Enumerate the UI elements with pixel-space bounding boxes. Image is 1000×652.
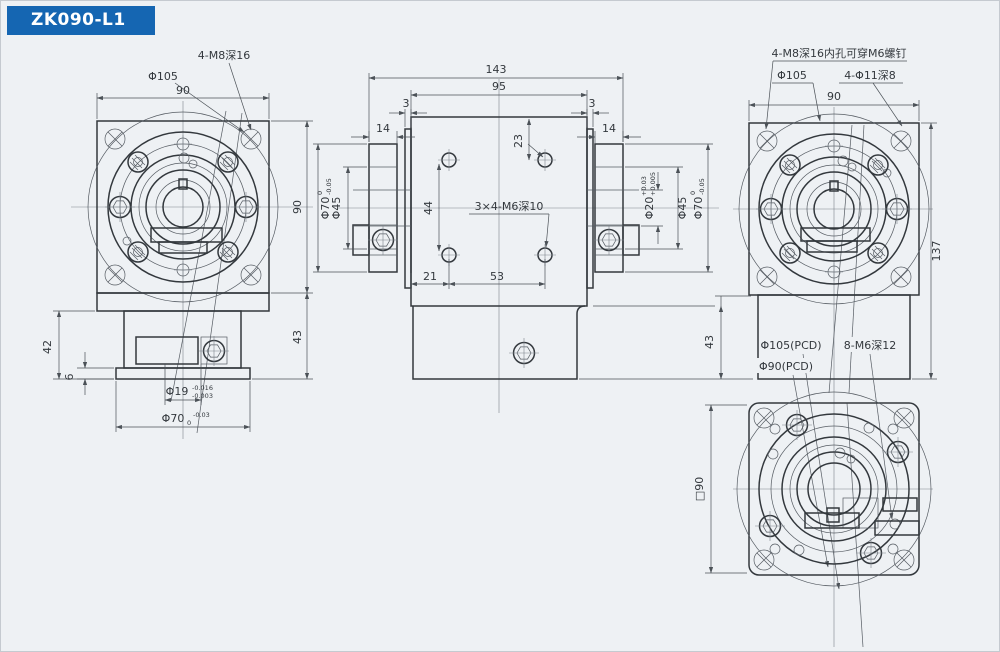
drawing-sheet: ZK090-L1 (0, 0, 1000, 652)
dim-side-overall: 143 (486, 63, 507, 76)
corner-hole-icon (894, 408, 914, 428)
dim-side-pilot-right-sup: 0 (689, 191, 697, 195)
label-rear-cbore: 4-Φ11深8 (844, 69, 896, 82)
dim-front-bore-sup: -0.016 (192, 384, 213, 392)
dim-rear-width: 90 (827, 90, 841, 103)
label-rear-taps: 8-M6深12 (844, 339, 896, 352)
dim-side-base-height: 43 (703, 335, 716, 349)
side-view: 143 95 3 3 14 14 23 44 3×4-M (313, 63, 753, 413)
dim-front-width: 90 (176, 84, 190, 97)
label-front-taps: 4-M8深16 (198, 49, 250, 62)
hex-socket-screw-icon (594, 225, 624, 255)
tap-hole-icon (825, 263, 843, 281)
dim-side-input-bore-sup: +0.03 (640, 176, 648, 196)
dim-side-pilot-left-sup: 0 (316, 191, 324, 195)
setscrew-slot (883, 498, 917, 511)
dim-front-height: 90 (291, 200, 304, 214)
hex-socket-screw-icon (199, 336, 229, 366)
hex-socket-screw-icon (883, 437, 913, 467)
dim-bottom-size: □90 (693, 477, 706, 501)
hex-socket-screw-icon (756, 194, 786, 224)
dim-side-pilot-right-sub: -0.05 (698, 178, 706, 195)
screw-head-icon (128, 242, 148, 262)
screw-head-icon (218, 242, 238, 262)
dim-side-flange-right: 14 (602, 122, 616, 135)
tap-hole-icon (174, 261, 192, 279)
dim-front-pilot-sup: -0.03 (193, 411, 210, 419)
corner-hole-icon (105, 265, 125, 285)
dim-front-base-left: 42 (41, 340, 54, 354)
dim-side-edge-left: 3 (403, 97, 410, 110)
tap-hole-icon (438, 149, 460, 171)
screw-head-icon (868, 155, 888, 175)
label-front-pcd: Φ105 (148, 70, 178, 83)
dim-side-input-bore: Φ20 (643, 197, 656, 220)
technical-drawing: 90 Φ105 4-M8深16 90 43 42 6 Φ19 -0.016 -0… (1, 1, 1000, 652)
label-side-taps: 3×4-M6深10 (475, 200, 544, 213)
dim-side-hole-pitch: 53 (490, 270, 504, 283)
corner-hole-icon (754, 550, 774, 570)
corner-hole-icon (757, 267, 777, 287)
dim-side-center-height: 44 (422, 201, 435, 215)
label-rear-note: 4-M8深16内孔可穿M6螺钉 (772, 46, 907, 60)
screw-head-icon (128, 152, 148, 172)
screw-head-icon (780, 155, 800, 175)
label-rear-pcd-small: Φ90(PCD) (759, 360, 813, 373)
dim-front-lip: 6 (63, 374, 76, 381)
front-view: 90 Φ105 4-M8深16 90 43 42 6 Φ19 -0.016 -0… (41, 49, 313, 439)
hex-socket-screw-icon (368, 225, 398, 255)
hex-socket-screw-icon (856, 538, 886, 568)
hex-socket-screw-icon (882, 194, 912, 224)
dim-side-flange-left: 14 (376, 122, 390, 135)
corner-hole-icon (754, 408, 774, 428)
corner-hole-icon (757, 131, 777, 151)
hex-socket-screw-icon (755, 511, 785, 541)
dim-rear-height: 137 (930, 241, 943, 262)
dim-side-body: 95 (492, 80, 506, 93)
tap-hole-icon (174, 135, 192, 153)
screw-head-icon (780, 243, 800, 263)
dim-side-input-bore-sub: +0.005 (649, 172, 657, 196)
corner-hole-icon (105, 129, 125, 149)
dim-side-shaft-right: Φ45 (676, 197, 689, 220)
dim-side-edge-right: 3 (589, 97, 596, 110)
dim-side-hole-left: 21 (423, 270, 437, 283)
hex-socket-screw-icon (509, 338, 539, 368)
dim-side-hole-offset-top: 23 (512, 134, 525, 148)
label-rear-pcd-large: Φ105(PCD) (760, 339, 821, 352)
corner-hole-icon (891, 267, 911, 287)
dim-front-bore: Φ19 (166, 385, 189, 398)
dim-front-base-height: 43 (291, 330, 304, 344)
dim-front-pilot-sub: 0 (187, 419, 191, 427)
corner-hole-icon (241, 265, 261, 285)
setscrew-slot (875, 521, 919, 535)
dim-side-pilot-left: Φ70 (319, 197, 332, 220)
hex-socket-screw-icon (105, 192, 135, 222)
label-rear-pcd: Φ105 (777, 69, 807, 82)
screw-head-icon (868, 243, 888, 263)
corner-hole-icon (891, 131, 911, 151)
hex-socket-screw-icon (231, 192, 261, 222)
dim-front-bore-sub: -0.003 (192, 392, 213, 400)
dim-front-pilot: Φ70 (162, 412, 185, 425)
hex-socket-screw-icon (782, 410, 812, 440)
tap-hole-icon (825, 137, 843, 155)
dim-side-pilot-right: Φ70 (692, 197, 705, 220)
dim-side-pilot-left-sub: -0.05 (325, 178, 333, 195)
corner-hole-icon (894, 550, 914, 570)
